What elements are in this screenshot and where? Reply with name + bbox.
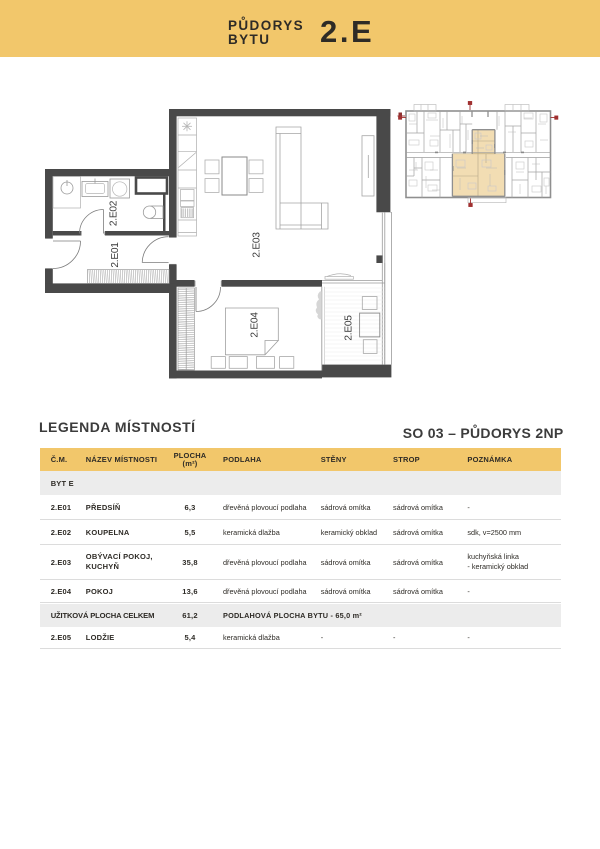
svg-text:2.E01: 2.E01 [110, 242, 121, 268]
svg-text:2.E04: 2.E04 [250, 312, 261, 338]
svg-text:2.E05: 2.E05 [344, 315, 355, 341]
svg-text:2.E03: 2.E03 [252, 232, 263, 258]
svg-text:2.E02: 2.E02 [109, 200, 120, 226]
